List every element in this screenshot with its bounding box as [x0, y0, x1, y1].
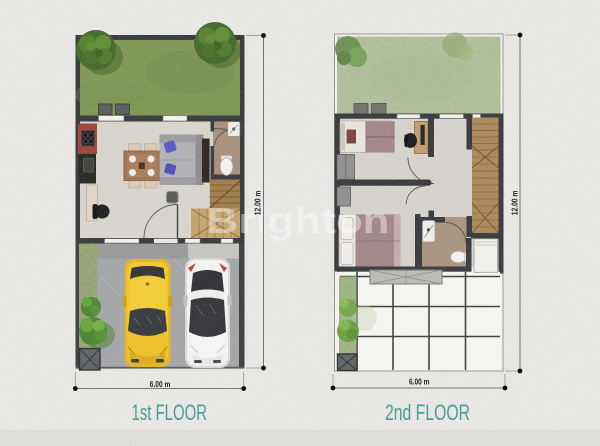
svg-text:Brighton: Brighton: [207, 200, 390, 241]
svg-text:6.00 m: 6.00 m: [150, 379, 171, 389]
svg-text:2nd FLOOR: 2nd FLOOR: [385, 400, 470, 425]
svg-text:6.00 m: 6.00 m: [409, 377, 430, 387]
svg-text:12.00 m: 12.00 m: [510, 191, 520, 216]
svg-text:1st FLOOR: 1st FLOOR: [132, 400, 208, 425]
svg-text:12.00 m: 12.00 m: [253, 191, 263, 216]
